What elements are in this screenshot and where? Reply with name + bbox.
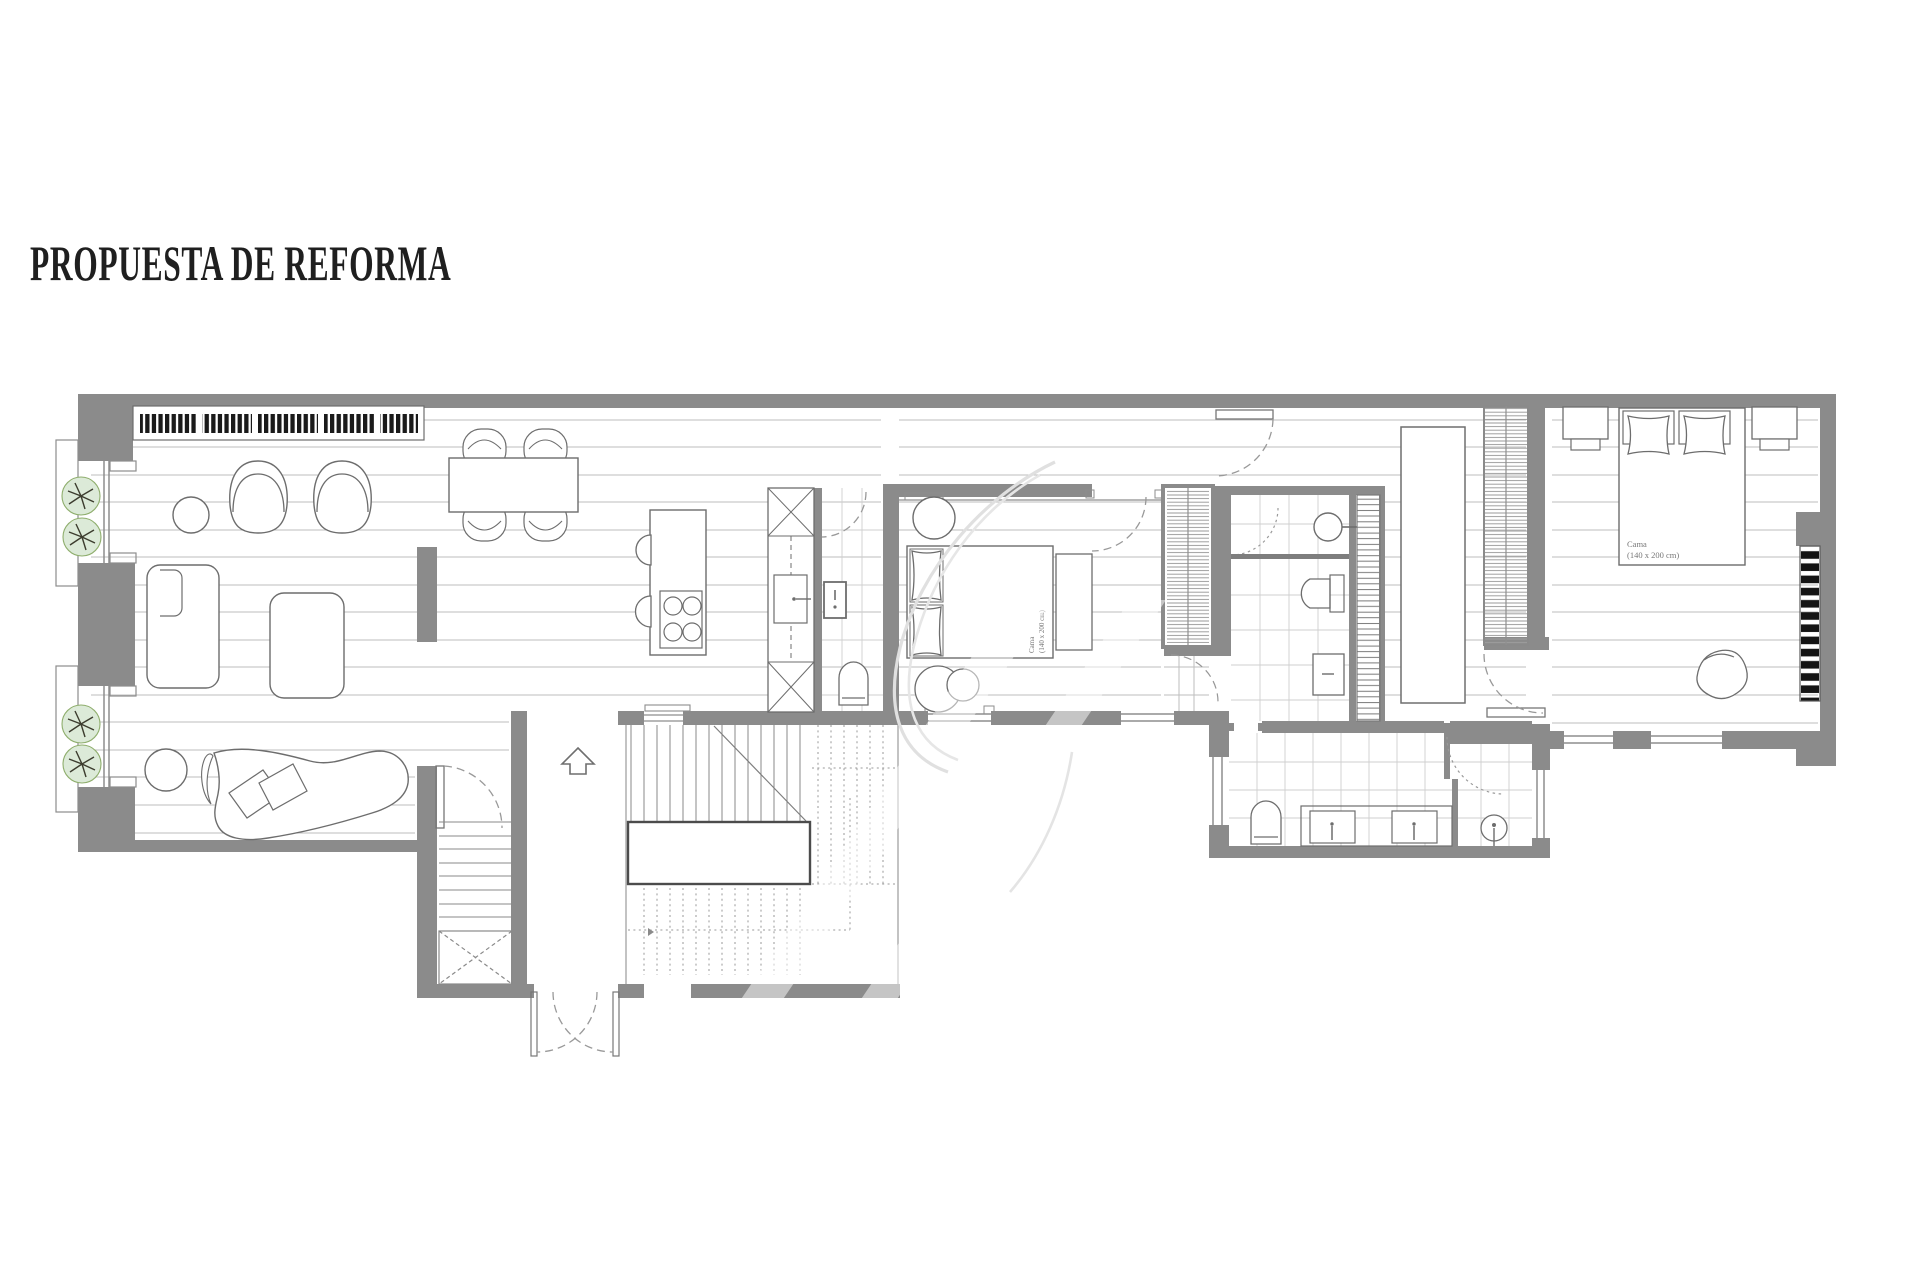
- svg-text:PROPUESTA DE REFORMA: PROPUESTA DE REFORMA: [30, 237, 451, 292]
- svg-text:(140 x 200 cm): (140 x 200 cm): [1627, 550, 1679, 560]
- svg-text:Cama: Cama: [1627, 539, 1647, 549]
- svg-text:Cama: Cama: [1028, 636, 1036, 653]
